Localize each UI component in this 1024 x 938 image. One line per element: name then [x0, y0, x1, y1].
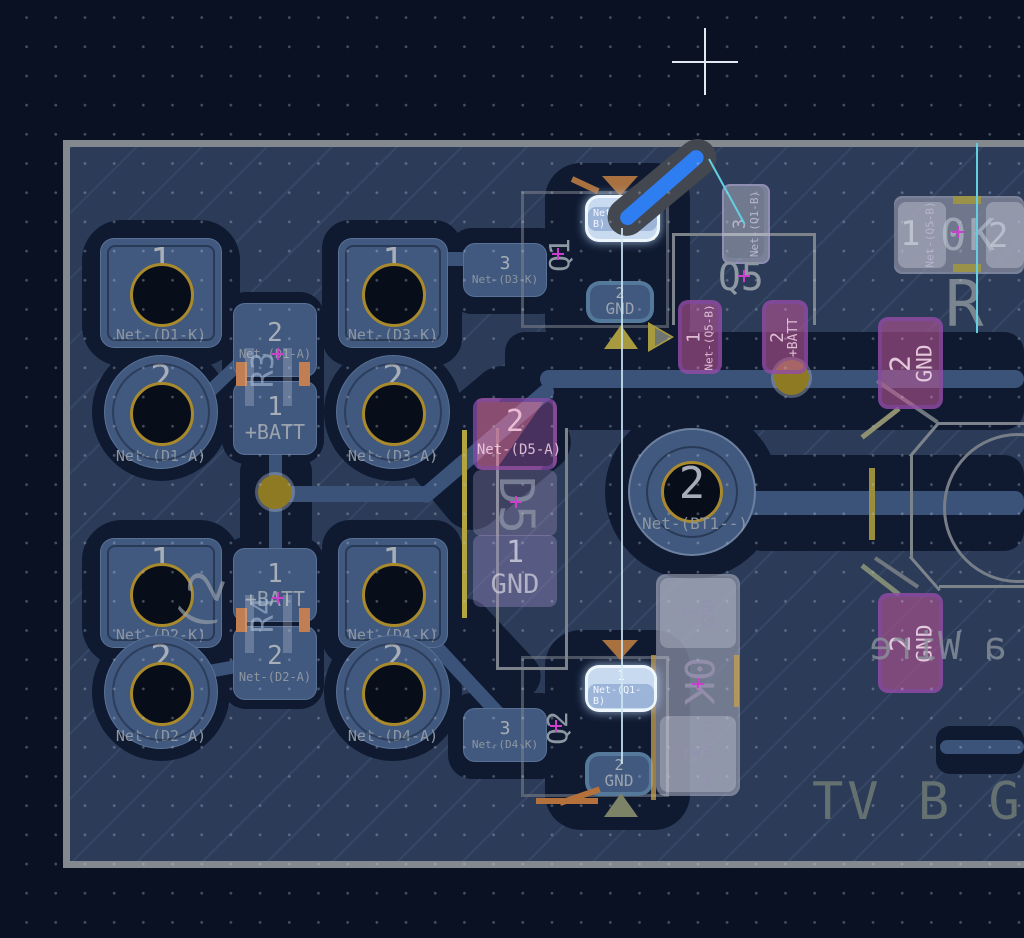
board-outline-left[interactable]	[63, 140, 70, 868]
courtyard-q5	[672, 233, 675, 325]
ratsnest-r5-vertical	[976, 143, 978, 333]
drill-hole	[362, 263, 426, 327]
resistor-body-bar	[283, 595, 292, 653]
courtyard-d5	[496, 667, 568, 670]
silk-text-mirrored[interactable]: a Wire	[858, 624, 1018, 668]
board-outline-bottom[interactable]	[63, 861, 1024, 868]
d5-polarity-line	[462, 430, 467, 618]
resistor-cap	[299, 362, 310, 386]
trace-bottom-right[interactable]	[940, 740, 1024, 754]
pcb-canvas[interactable]: 1 Net-(D1-K) 2 Net-(D1-A) 1 Net-(D2-K) 2…	[0, 0, 1024, 938]
silk-line-olive	[869, 468, 875, 540]
courtyard-q5	[813, 233, 816, 325]
anchor-rb	[692, 678, 704, 690]
pad-d3-1[interactable]: 1 Net-(D3-K)	[338, 238, 448, 348]
pad-r5-1-num: 1	[900, 214, 920, 254]
crosshair-cursor	[704, 28, 706, 95]
pad-q5-2[interactable]: 2 +BATT	[762, 300, 808, 374]
resistor-body-bar	[283, 348, 292, 406]
pad-r5-1-net: Net-(Q5-B)	[920, 198, 940, 270]
pad-d2-2[interactable]: 2 Net-(D2-A)	[104, 635, 218, 749]
drill-hole	[130, 662, 194, 726]
pad-d1-2[interactable]: 2 Net-(D1-A)	[104, 355, 218, 469]
q2-fab-arrow-down	[602, 640, 638, 660]
pad-rb-2-label: 2 Net-(Q1-B)	[660, 712, 736, 792]
drill-hole	[130, 263, 194, 327]
anchor-q2	[550, 720, 562, 732]
drill-hole	[362, 662, 426, 726]
pad-rb-1-label: 1 GND	[660, 576, 736, 650]
pad-q1-2[interactable]: 2 GND	[586, 281, 654, 323]
board-outline-top[interactable]	[63, 140, 1024, 147]
pad-q5-1[interactable]: 1 Net-(Q5-B)	[678, 300, 722, 374]
anchor-r4	[272, 592, 284, 604]
drill-hole	[362, 382, 426, 446]
pad-d1-1[interactable]: 1 Net-(D1-K)	[100, 238, 222, 348]
courtyard-d5	[565, 428, 568, 670]
octagon-outline	[910, 455, 913, 558]
anchor-r3	[272, 348, 284, 360]
q2-fab-arrow-up	[604, 793, 638, 817]
octagon-outline	[939, 585, 1024, 588]
silk-text-tvbg[interactable]: TV B G	[812, 772, 1024, 832]
resistor-cap	[299, 608, 310, 632]
q1-fab-arrow-right-inner	[655, 328, 671, 346]
pad-d4-2[interactable]: 2 Net-(D4-A)	[336, 635, 450, 749]
r5-value-text[interactable]: 0K	[940, 210, 997, 261]
ratsnest-q1b-vertical	[621, 228, 623, 764]
octagon-outline	[939, 422, 1024, 425]
trace-batt-horizontal[interactable]	[275, 486, 430, 502]
via-batt[interactable]	[258, 475, 292, 509]
ref-r3[interactable]: R3	[244, 330, 284, 410]
pad-gnd-top[interactable]: 2 GND	[878, 317, 943, 409]
pad-d3-2[interactable]: 2 Net-(D3-A)	[336, 355, 450, 469]
pad-d4-1[interactable]: 1 Net-(D4-K)	[338, 538, 448, 648]
anchor-q5	[738, 270, 750, 282]
anchor-q1	[552, 248, 564, 260]
ref-r4[interactable]: R4	[244, 575, 284, 655]
drill-hole	[130, 382, 194, 446]
pad-bt1-2[interactable]: 2 Net-(BT1--)	[628, 428, 756, 556]
anchor-d5	[510, 496, 522, 508]
rb-cap-line	[734, 655, 739, 707]
anchor-r5	[952, 226, 964, 238]
drill-hole	[362, 563, 426, 627]
